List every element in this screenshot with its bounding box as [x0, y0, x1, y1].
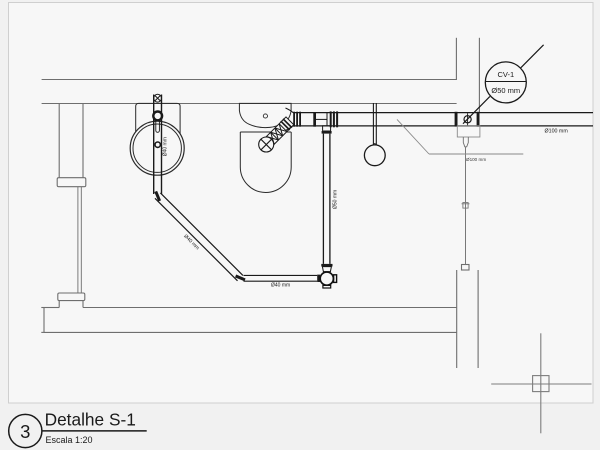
- svg-text:CV-1: CV-1: [497, 70, 514, 79]
- svg-text:Ø100 mm: Ø100 mm: [466, 157, 486, 162]
- svg-text:Ø50 mm: Ø50 mm: [491, 86, 520, 95]
- svg-text:Ø40 mm: Ø40 mm: [162, 137, 168, 156]
- svg-text:3: 3: [20, 421, 30, 442]
- svg-text:Ø100 mm: Ø100 mm: [545, 128, 569, 134]
- svg-text:Ø40 mm: Ø40 mm: [271, 283, 290, 289]
- svg-text:Escala 1:20: Escala 1:20: [46, 435, 93, 445]
- svg-text:Detalhe S-1: Detalhe S-1: [45, 409, 136, 429]
- svg-text:Ø50 mm: Ø50 mm: [333, 190, 339, 209]
